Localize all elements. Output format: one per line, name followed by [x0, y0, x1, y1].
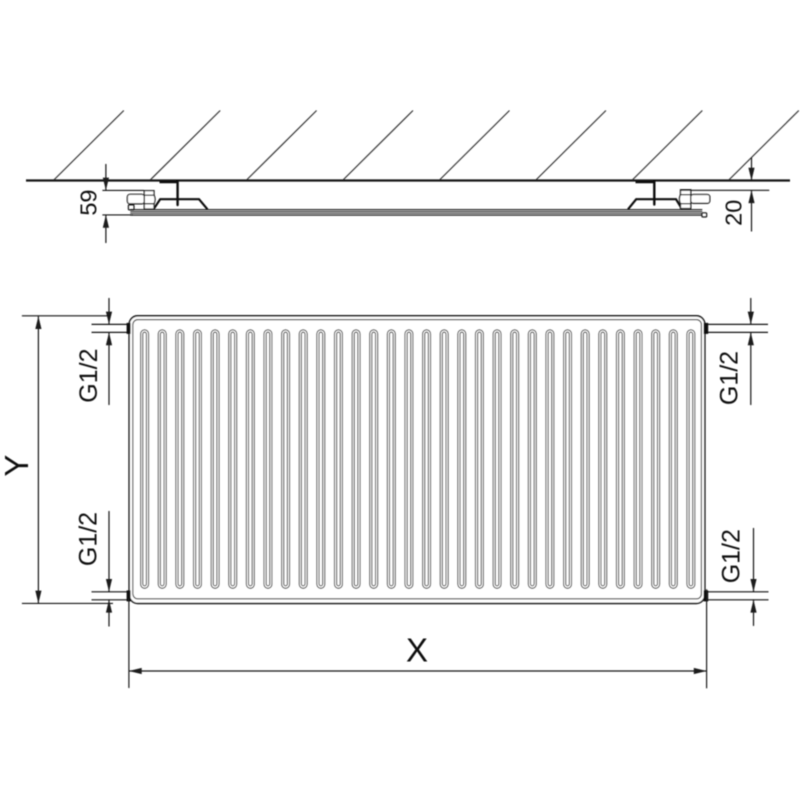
svg-text:Y: Y [0, 455, 35, 477]
svg-text:G1/2: G1/2 [717, 529, 745, 583]
svg-text:X: X [406, 632, 428, 669]
svg-text:G1/2: G1/2 [75, 512, 103, 566]
svg-text:G1/2: G1/2 [75, 348, 103, 402]
svg-text:59: 59 [76, 190, 102, 216]
svg-text:G1/2: G1/2 [715, 351, 743, 405]
svg-text:20: 20 [720, 200, 746, 226]
